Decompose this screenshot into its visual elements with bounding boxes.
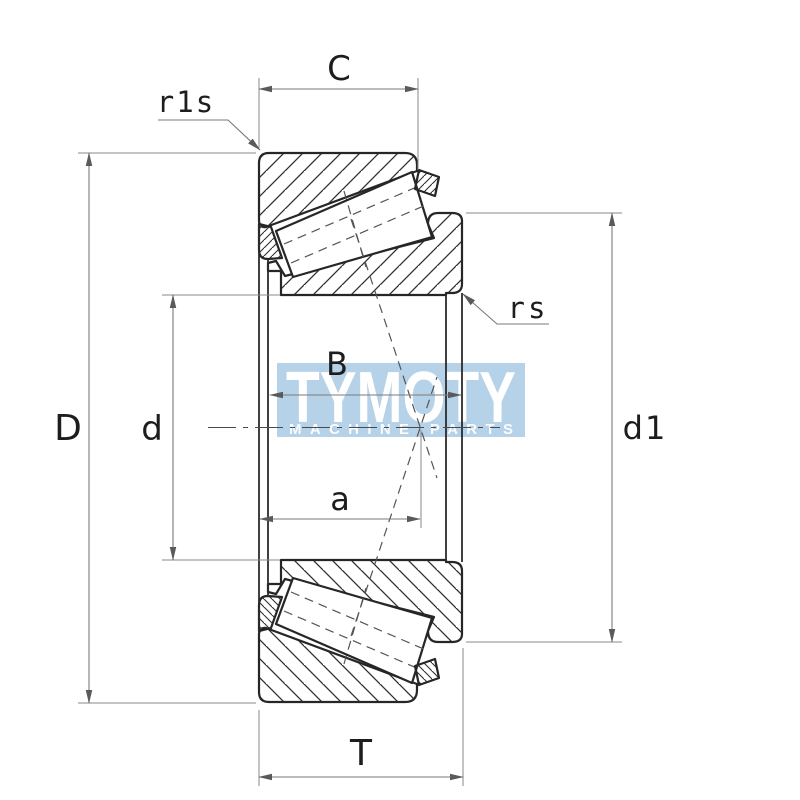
label-B: B bbox=[326, 345, 348, 383]
label-T: T bbox=[349, 733, 373, 774]
label-r1s: r1s bbox=[157, 85, 215, 119]
bearing-technical-drawing: TYMOTY MACHINE PARTS C r1s bbox=[0, 0, 800, 800]
label-d: d bbox=[141, 409, 163, 449]
label-a: a bbox=[330, 480, 350, 518]
label-D: D bbox=[54, 408, 82, 449]
label-rs: rs bbox=[508, 291, 549, 325]
drawing-canvas: TYMOTY MACHINE PARTS C r1s bbox=[0, 0, 800, 800]
watermark: TYMOTY MACHINE PARTS bbox=[277, 358, 525, 438]
label-d1: d1 bbox=[623, 409, 668, 447]
label-C: C bbox=[327, 49, 351, 89]
